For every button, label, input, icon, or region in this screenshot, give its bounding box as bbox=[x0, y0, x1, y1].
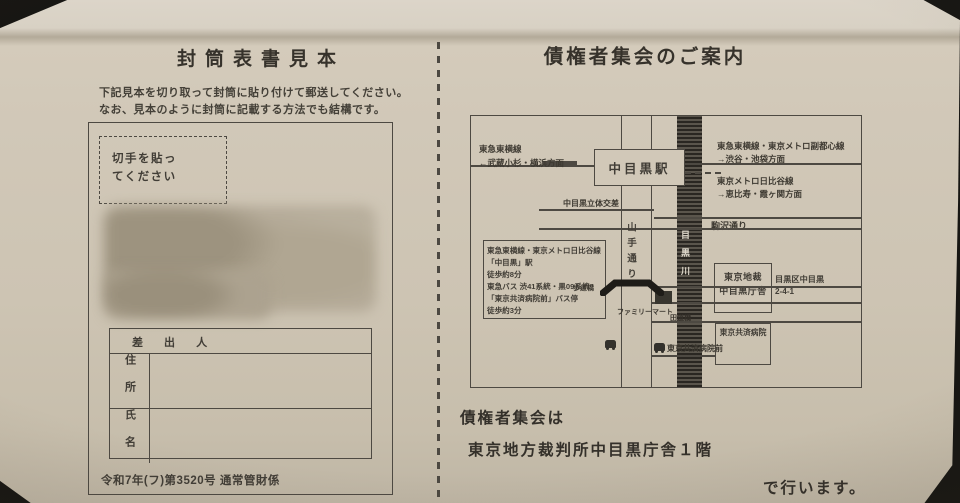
hospital-street-south-line bbox=[652, 355, 715, 357]
access-line: 「中目黒」駅 bbox=[487, 257, 602, 269]
familymart-label: ファミリーマート bbox=[617, 307, 673, 317]
toyoko-line-west-direction: ←武蔵小杉・横浜方面 bbox=[479, 157, 564, 169]
dento-bridge-label: 田道橋 bbox=[670, 313, 691, 323]
access-line: 徒歩約8分 bbox=[487, 269, 602, 281]
hibiya-line-label: 東京メトロ日比谷線 bbox=[717, 175, 794, 187]
instruction-line-1: 下記見本を切り取って封筒に貼り付けて郵送してください。 bbox=[99, 84, 408, 100]
sender-address-label-cell: 住所 bbox=[110, 354, 150, 409]
meeting-footer-line2: 東京地方裁判所中目黒庁舎１階 bbox=[468, 438, 713, 460]
sender-name-label-cell: 氏名 bbox=[110, 409, 150, 463]
envelope-sample-box: 切手を貼っ てください 差 出 人 住所 氏名 令和7年(フ)第3520号 通常… bbox=[88, 122, 393, 495]
toyoko-fukutoshin-label: 東急東横線・東京メトロ副都心線 bbox=[717, 140, 845, 152]
tokyo-kyosai-hospital-box: 東京共済病院 bbox=[715, 323, 771, 365]
sender-address-field bbox=[150, 354, 371, 409]
bus-icon bbox=[654, 343, 665, 351]
yamate-street-label: 山手通り bbox=[623, 222, 637, 284]
court-address-line1: 目黒区中目黒 bbox=[775, 274, 824, 286]
nakameguro-station-box: 中目黒駅 bbox=[594, 149, 685, 186]
sender-header: 差 出 人 bbox=[110, 329, 371, 354]
creditors-meeting-title: 債権者集会のご案内 bbox=[505, 40, 785, 69]
court-street-south-line bbox=[652, 302, 861, 304]
meguro-river-label: 目黒川 bbox=[679, 230, 692, 284]
hibiya-line-direction: →恵比寿・霞ヶ関方面 bbox=[717, 188, 802, 200]
access-line: 東急東横線・東京メトロ日比谷線 bbox=[487, 245, 602, 257]
toyoko-line-west-label: 東急東横線 bbox=[479, 143, 522, 155]
pedestrian-bridge-label: 歩道橋 bbox=[573, 283, 594, 293]
sender-table: 差 出 人 住所 氏名 bbox=[109, 328, 372, 459]
document-photo: 封筒表書見本 下記見本を切り取って封筒に貼り付けて郵送してください。 なお、見本… bbox=[0, 0, 960, 503]
access-line: 徒歩約3分 bbox=[487, 305, 602, 317]
tokyo-district-court-box: 東京地裁 中目黒庁舎 bbox=[714, 263, 772, 313]
sender-address-label: 住所 bbox=[122, 354, 138, 408]
bus-icon bbox=[605, 340, 616, 348]
hibiya-line-dashed bbox=[685, 172, 721, 174]
grade-separation-label: 中目黒立体交差 bbox=[563, 198, 619, 209]
komazawa-street-label: 駒沢通り bbox=[711, 219, 747, 232]
court-address-line2: 2-4-1 bbox=[775, 286, 824, 298]
access-map: 目黒川 山手通り 中目黒駅 東急東横線 ←武蔵小杉・横浜方面 東急東横線・東京メ… bbox=[470, 115, 862, 388]
redacted-address-blur-2 bbox=[104, 271, 272, 319]
cut-dashed-line bbox=[437, 42, 440, 503]
instruction-line-2: なお、見本のように封筒に記載する方法でも結構です。 bbox=[99, 101, 385, 117]
grade-separation-road bbox=[539, 209, 654, 211]
court-street-north-line bbox=[652, 286, 861, 288]
sender-name-label: 氏名 bbox=[122, 409, 138, 463]
court-name-line1: 東京地裁 bbox=[715, 271, 771, 285]
komazawa-street-north-line bbox=[654, 217, 861, 219]
bus-stop-label: 東京共済病院前 bbox=[667, 343, 723, 354]
case-number: 令和7年(フ)第3520号 通常管財係 bbox=[101, 472, 280, 488]
meeting-footer-line3: で行います。 bbox=[763, 476, 866, 498]
pedestrian-bridge-icon bbox=[600, 278, 664, 296]
railway-line-east bbox=[685, 163, 861, 165]
envelope-sample-title: 封筒表書見本 bbox=[138, 44, 384, 71]
sender-name-field bbox=[150, 409, 371, 463]
meeting-footer-line1: 債権者集会は bbox=[460, 406, 565, 428]
stamp-placeholder-box: 切手を貼っ てください bbox=[99, 136, 227, 204]
access-directions-box: 東急東横線・東京メトロ日比谷線 「中目黒」駅 徒歩約8分 東急バス 渋41系統・… bbox=[483, 240, 606, 319]
komazawa-street-south-line bbox=[539, 228, 861, 230]
access-line: 「東京共済病院前」バス停 bbox=[487, 293, 602, 305]
